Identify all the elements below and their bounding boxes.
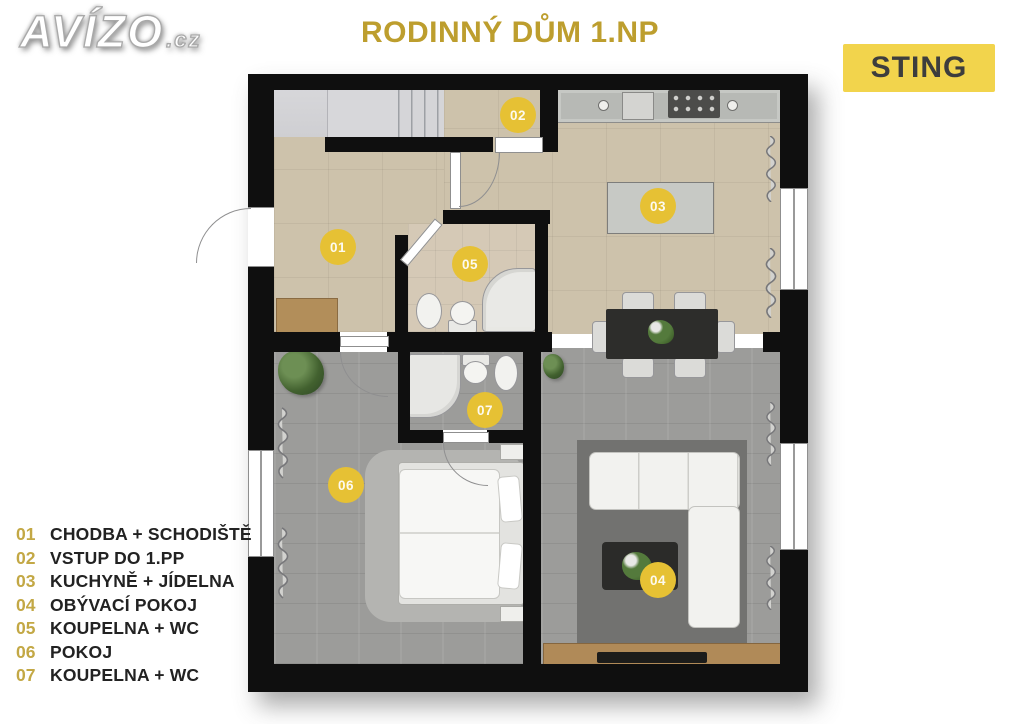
- window-living: [780, 443, 808, 550]
- legend-number: 07: [16, 665, 50, 686]
- room-badge-07: 07: [467, 392, 503, 428]
- nightstand: [500, 444, 524, 460]
- sofa-horizontal: [589, 452, 740, 510]
- legend-number: 01: [16, 524, 50, 545]
- legend-label: VSTUP DO 1.PP: [50, 548, 185, 569]
- wall-outer-top: [248, 74, 808, 90]
- wall-bathroom1-right: [535, 210, 548, 332]
- basement-door: [495, 137, 543, 153]
- nightstand: [500, 606, 524, 622]
- curtain-bedroom-top: [276, 406, 292, 480]
- bed: [398, 462, 525, 605]
- faucet-knob: [727, 100, 738, 111]
- wall-divider-stub: [763, 332, 780, 352]
- table-plant: [648, 320, 674, 344]
- legend-item: 04 OBÝVACÍ POKOJ: [16, 595, 252, 619]
- legend-label: OBÝVACÍ POKOJ: [50, 595, 197, 616]
- legend-item: 03 KUCHYNĚ + JÍDELNA: [16, 571, 252, 595]
- legend-label: POKOJ: [50, 642, 112, 663]
- agency-badge-label: STING: [871, 51, 968, 85]
- legend-item: 02 VSTUP DO 1.PP: [16, 548, 252, 572]
- bedroom-door-leaf: [340, 336, 389, 347]
- agency-badge: STING: [843, 44, 995, 92]
- toilet2-bowl: [463, 361, 488, 384]
- hallway-bench: [276, 298, 338, 336]
- logo-suffix: .cz: [166, 27, 201, 52]
- legend-label: KOUPELNA + WC: [50, 665, 199, 686]
- legend-item: 01 CHODBA + SCHODIŠTĚ: [16, 524, 252, 548]
- avizo-logo: AVÍZO.cz: [20, 6, 202, 58]
- room-badge-04: 04: [640, 562, 676, 598]
- legend-number: 02: [16, 548, 50, 569]
- wall-outer-left: [248, 74, 274, 692]
- tv: [597, 652, 707, 663]
- dining-chair: [674, 357, 706, 378]
- entry-door-gap: [248, 207, 274, 267]
- bathroom2-door-leaf: [443, 432, 489, 443]
- curtain-kitchen-top: [764, 136, 780, 202]
- wall-stairs: [325, 137, 493, 152]
- legend-item: 05 KOUPELNA + WC: [16, 618, 252, 642]
- room-badge-02: 02: [500, 97, 536, 133]
- room-badge-01: 01: [320, 229, 356, 265]
- corner-plant: [543, 354, 564, 379]
- bedroom-plant: [278, 350, 324, 395]
- room-badge-06: 06: [328, 467, 364, 503]
- pillow: [497, 542, 523, 590]
- pillow: [497, 475, 523, 523]
- curtain-living-bottom: [764, 546, 780, 610]
- dining-chair: [716, 321, 735, 353]
- legend: 01 CHODBA + SCHODIŠTĚ 02 VSTUP DO 1.PP 0…: [16, 524, 252, 689]
- legend-number: 06: [16, 642, 50, 663]
- bathroom2-sink: [494, 355, 518, 391]
- stove-cooktop: [668, 90, 720, 118]
- legend-number: 04: [16, 595, 50, 616]
- curtain-kitchen-bottom: [764, 248, 780, 318]
- entry-door-arc: [196, 208, 251, 263]
- wall-bathroom1-left: [395, 235, 408, 332]
- bathroom1-sink: [416, 293, 442, 329]
- wall-outer-bottom: [248, 664, 808, 692]
- faucet-knob: [598, 100, 609, 111]
- curtain-bedroom-bottom: [276, 524, 292, 602]
- toilet-bowl: [450, 301, 475, 325]
- wall-divider-horizontal: [274, 332, 552, 352]
- room-badge-05: 05: [452, 246, 488, 282]
- legend-item: 07 KOUPELNA + WC: [16, 665, 252, 689]
- legend-label: CHODBA + SCHODIŠTĚ: [50, 524, 252, 545]
- wall-bedroom-living: [523, 332, 541, 664]
- window-kitchen: [780, 188, 808, 290]
- bed-duvet: [399, 469, 500, 599]
- legend-item: 06 POKOJ: [16, 642, 252, 666]
- legend-label: KUCHYNĚ + JÍDELNA: [50, 571, 235, 592]
- wall-bathroom1-top: [443, 210, 550, 224]
- room-badge-03: 03: [640, 188, 676, 224]
- wall-outer-right: [780, 74, 808, 692]
- logo-text: AVÍZO: [20, 6, 164, 57]
- page: AVÍZO.cz RODINNÝ DŮM 1.NP STING: [0, 0, 1024, 724]
- legend-number: 05: [16, 618, 50, 639]
- legend-label: KOUPELNA + WC: [50, 618, 199, 639]
- page-title: RODINNÝ DŮM 1.NP: [320, 16, 700, 50]
- legend-number: 03: [16, 571, 50, 592]
- sofa-vertical: [688, 506, 740, 628]
- curtain-living-top: [764, 402, 780, 466]
- dining-chair: [622, 357, 654, 378]
- kitchen-sink: [622, 92, 654, 120]
